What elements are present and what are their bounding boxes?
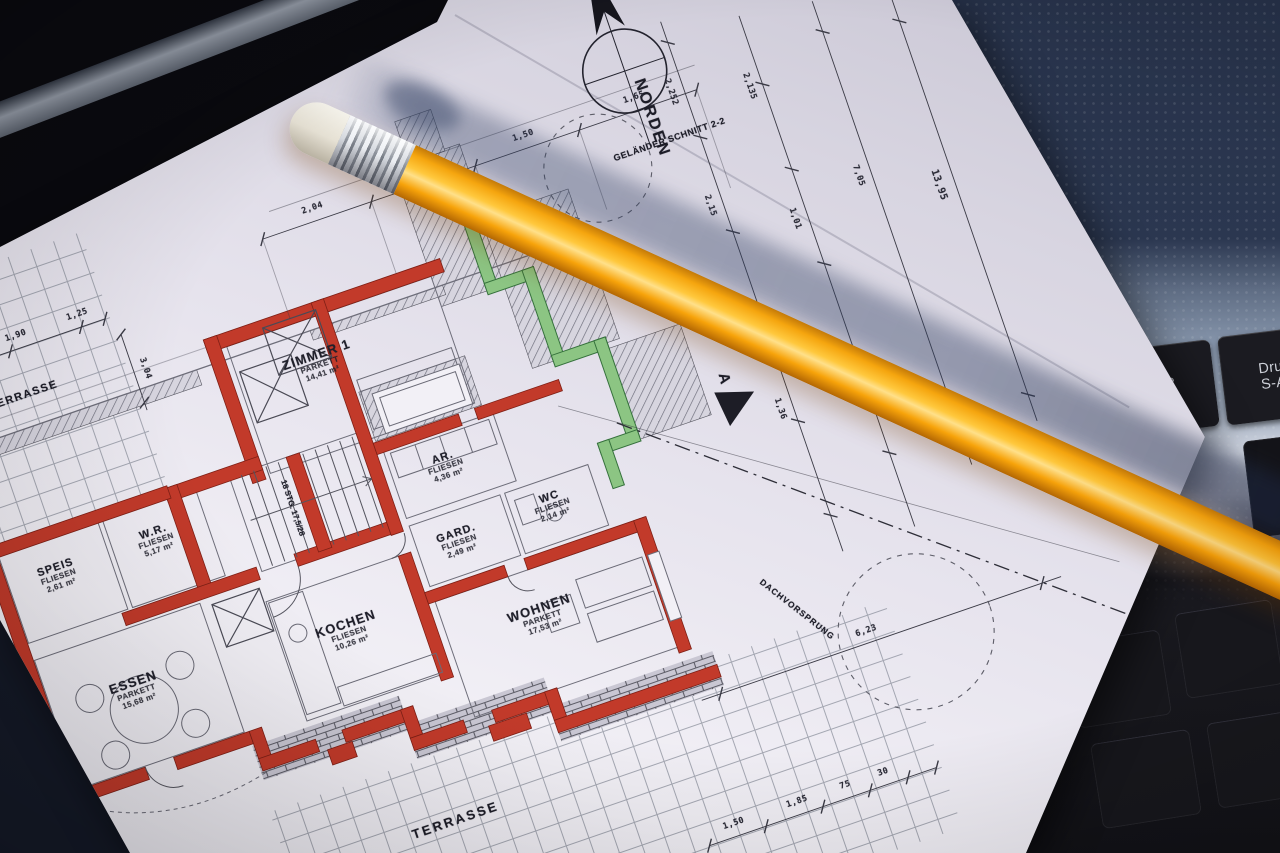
photo-scene: Pause Untbr Druck S-Abf [0, 0, 1280, 853]
